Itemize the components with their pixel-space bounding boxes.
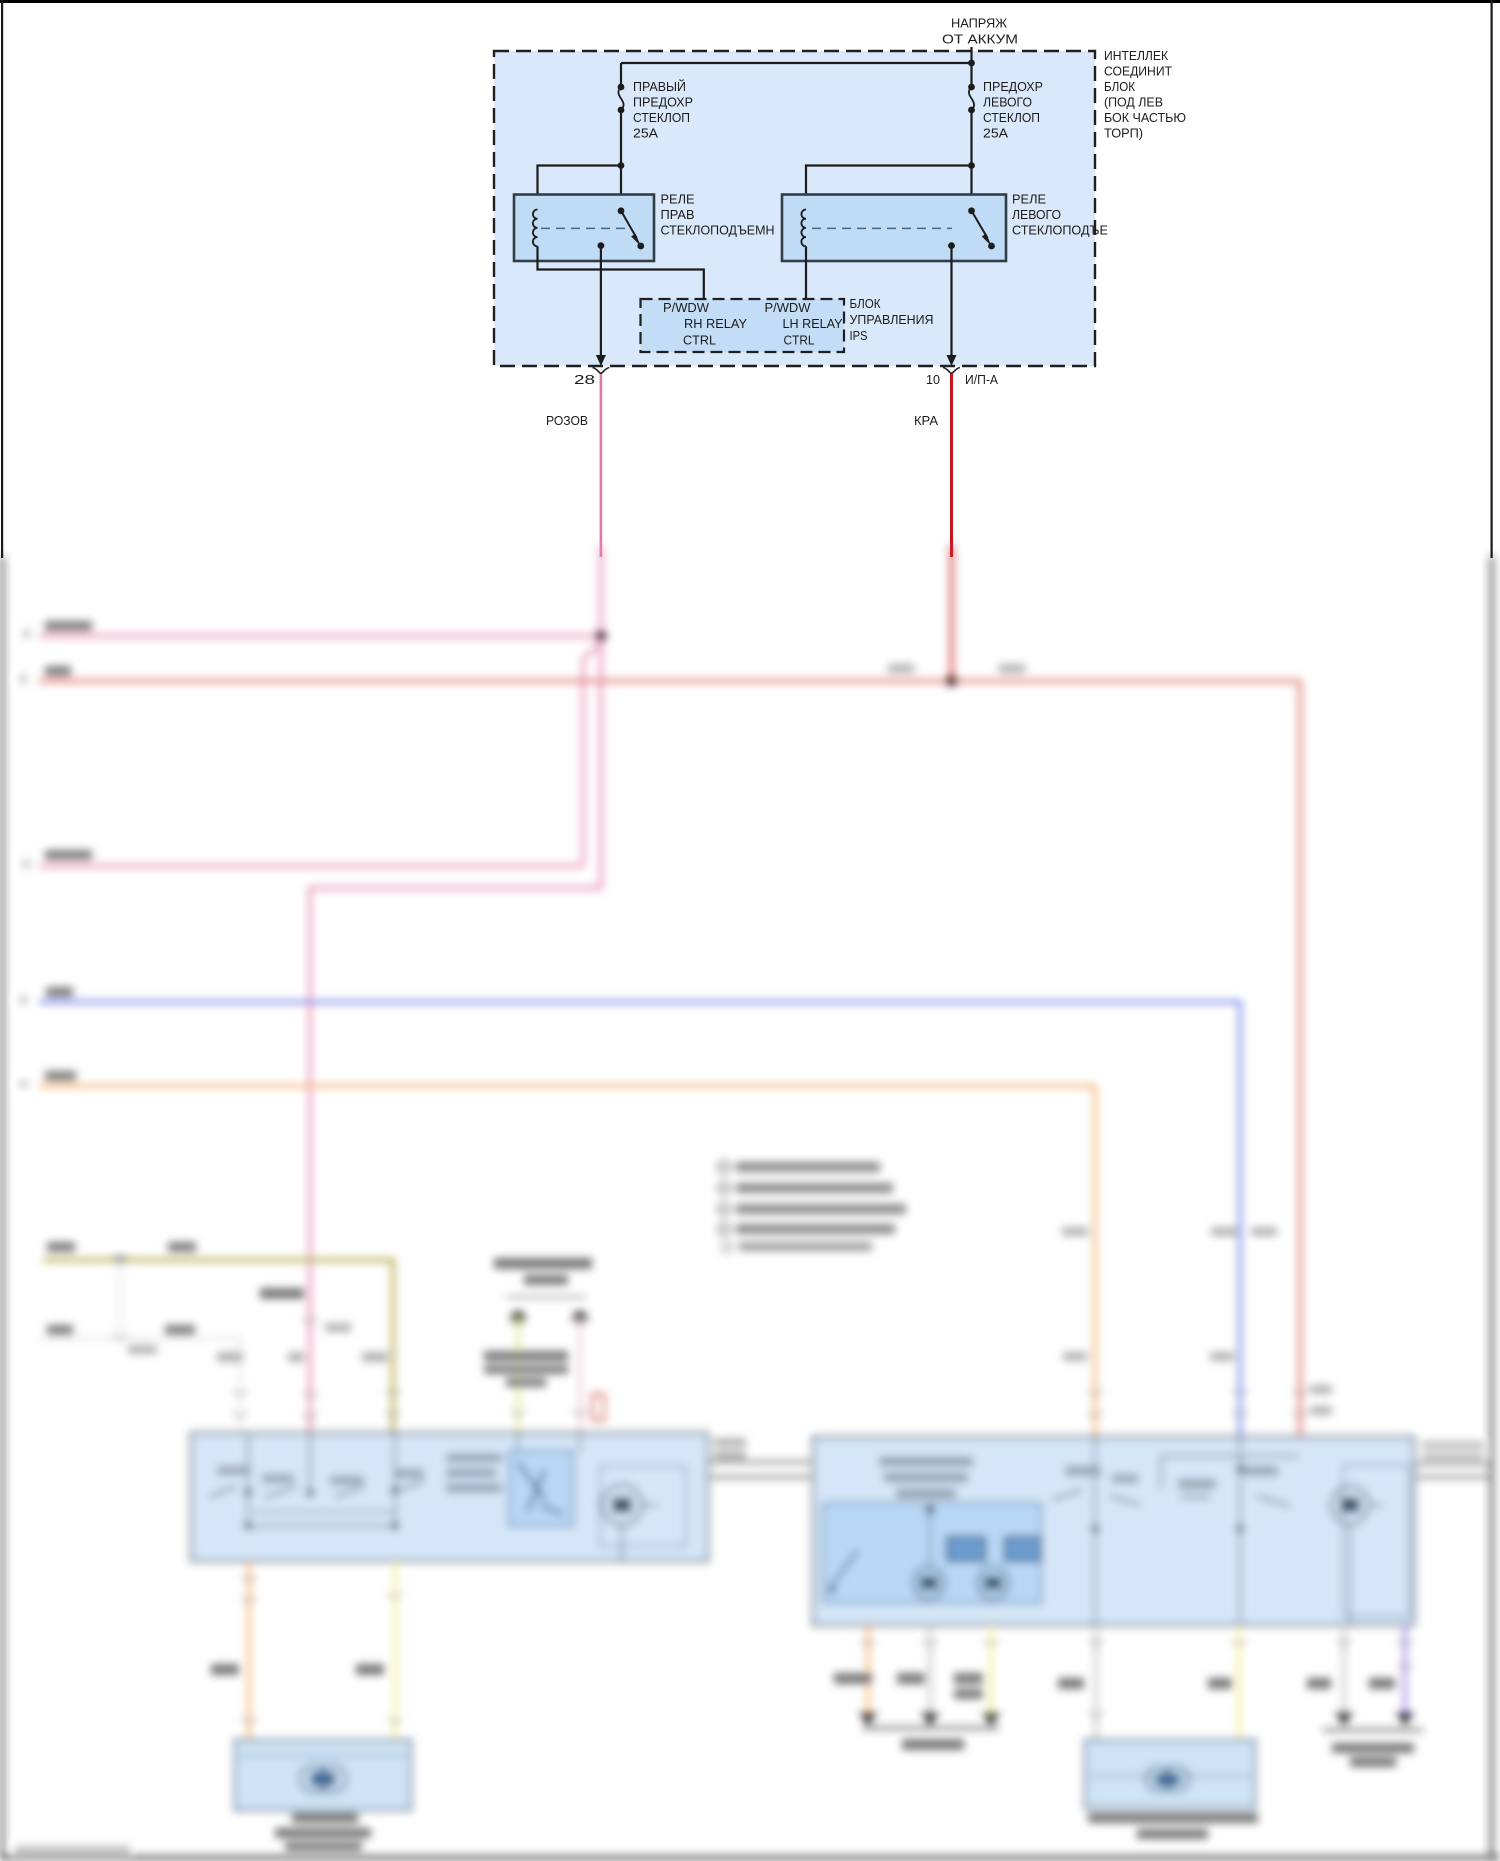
svg-text:CTRL: CTRL [784, 333, 815, 348]
svg-text:ЛЕВОГО: ЛЕВОГО [983, 95, 1032, 110]
svg-text:28: 28 [574, 372, 595, 387]
svg-text:ЛЕВОГО: ЛЕВОГО [1012, 207, 1061, 222]
svg-text:ПРАВ: ПРАВ [661, 207, 695, 222]
svg-text:ТОРП): ТОРП) [1104, 126, 1143, 141]
svg-text:P/WDW: P/WDW [765, 300, 812, 315]
svg-text:СТЕКЛОП: СТЕКЛОП [983, 110, 1040, 125]
svg-text:25А: 25А [983, 126, 1008, 141]
svg-text:СТЕКЛОПОДЪЕ: СТЕКЛОПОДЪЕ [1012, 223, 1108, 238]
svg-text:РОЗОВ: РОЗОВ [546, 413, 588, 428]
svg-text:БЛОК: БЛОК [850, 296, 881, 311]
svg-text:БОК ЧАСТЬЮ: БОК ЧАСТЬЮ [1104, 110, 1186, 125]
svg-text:25А: 25А [633, 126, 658, 141]
svg-text:RH RELAY: RH RELAY [684, 316, 747, 331]
svg-text:ИНТЕЛЛЕК: ИНТЕЛЛЕК [1104, 48, 1168, 63]
svg-text:ОТ АККУМ: ОТ АККУМ [942, 32, 1018, 47]
svg-text:БЛОК: БЛОК [1104, 79, 1135, 94]
svg-text:КРА: КРА [914, 413, 938, 428]
svg-text:CTRL: CTRL [683, 333, 716, 348]
svg-text:(ПОД ЛЕВ: (ПОД ЛЕВ [1104, 95, 1163, 110]
svg-text:СТЕКЛОПОДЪЕМН: СТЕКЛОПОДЪЕМН [661, 223, 775, 238]
svg-text:LH RELAY: LH RELAY [783, 316, 843, 331]
svg-text:И/П-А: И/П-А [965, 372, 998, 387]
svg-text:ПРЕДОХР: ПРЕДОХР [983, 79, 1043, 94]
svg-text:СТЕКЛОП: СТЕКЛОП [633, 110, 690, 125]
svg-text:РЕЛЕ: РЕЛЕ [1012, 192, 1046, 207]
svg-text:СОЕДИНИТ: СОЕДИНИТ [1104, 64, 1172, 79]
svg-text:10: 10 [926, 372, 940, 387]
svg-text:РЕЛЕ: РЕЛЕ [661, 192, 695, 207]
svg-text:ПРАВЫЙ: ПРАВЫЙ [633, 79, 686, 94]
svg-text:ПРЕДОХР: ПРЕДОХР [633, 95, 693, 110]
svg-text:НАПРЯЖ: НАПРЯЖ [951, 16, 1007, 31]
svg-text:IPS: IPS [850, 328, 868, 343]
svg-text:P/WDW: P/WDW [663, 300, 710, 315]
svg-text:УПРАВЛЕНИЯ: УПРАВЛЕНИЯ [850, 312, 934, 327]
